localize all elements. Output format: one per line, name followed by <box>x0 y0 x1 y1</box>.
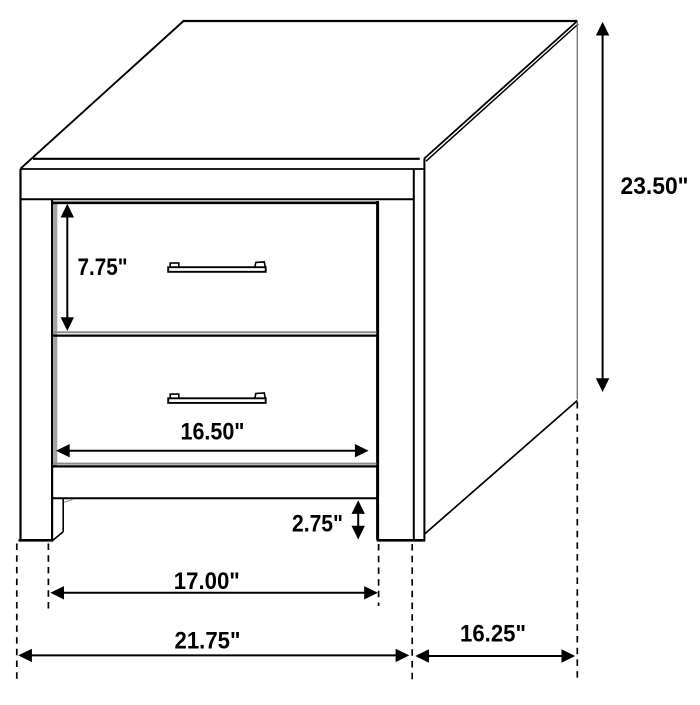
svg-text:2.75": 2.75" <box>292 511 343 538</box>
svg-text:7.75": 7.75" <box>78 254 128 281</box>
svg-text:16.50": 16.50" <box>181 419 245 446</box>
svg-text:16.25": 16.25" <box>460 621 526 648</box>
svg-text:17.00": 17.00" <box>174 568 240 595</box>
svg-text:21.75": 21.75" <box>175 628 241 655</box>
svg-text:23.50": 23.50" <box>621 173 689 200</box>
